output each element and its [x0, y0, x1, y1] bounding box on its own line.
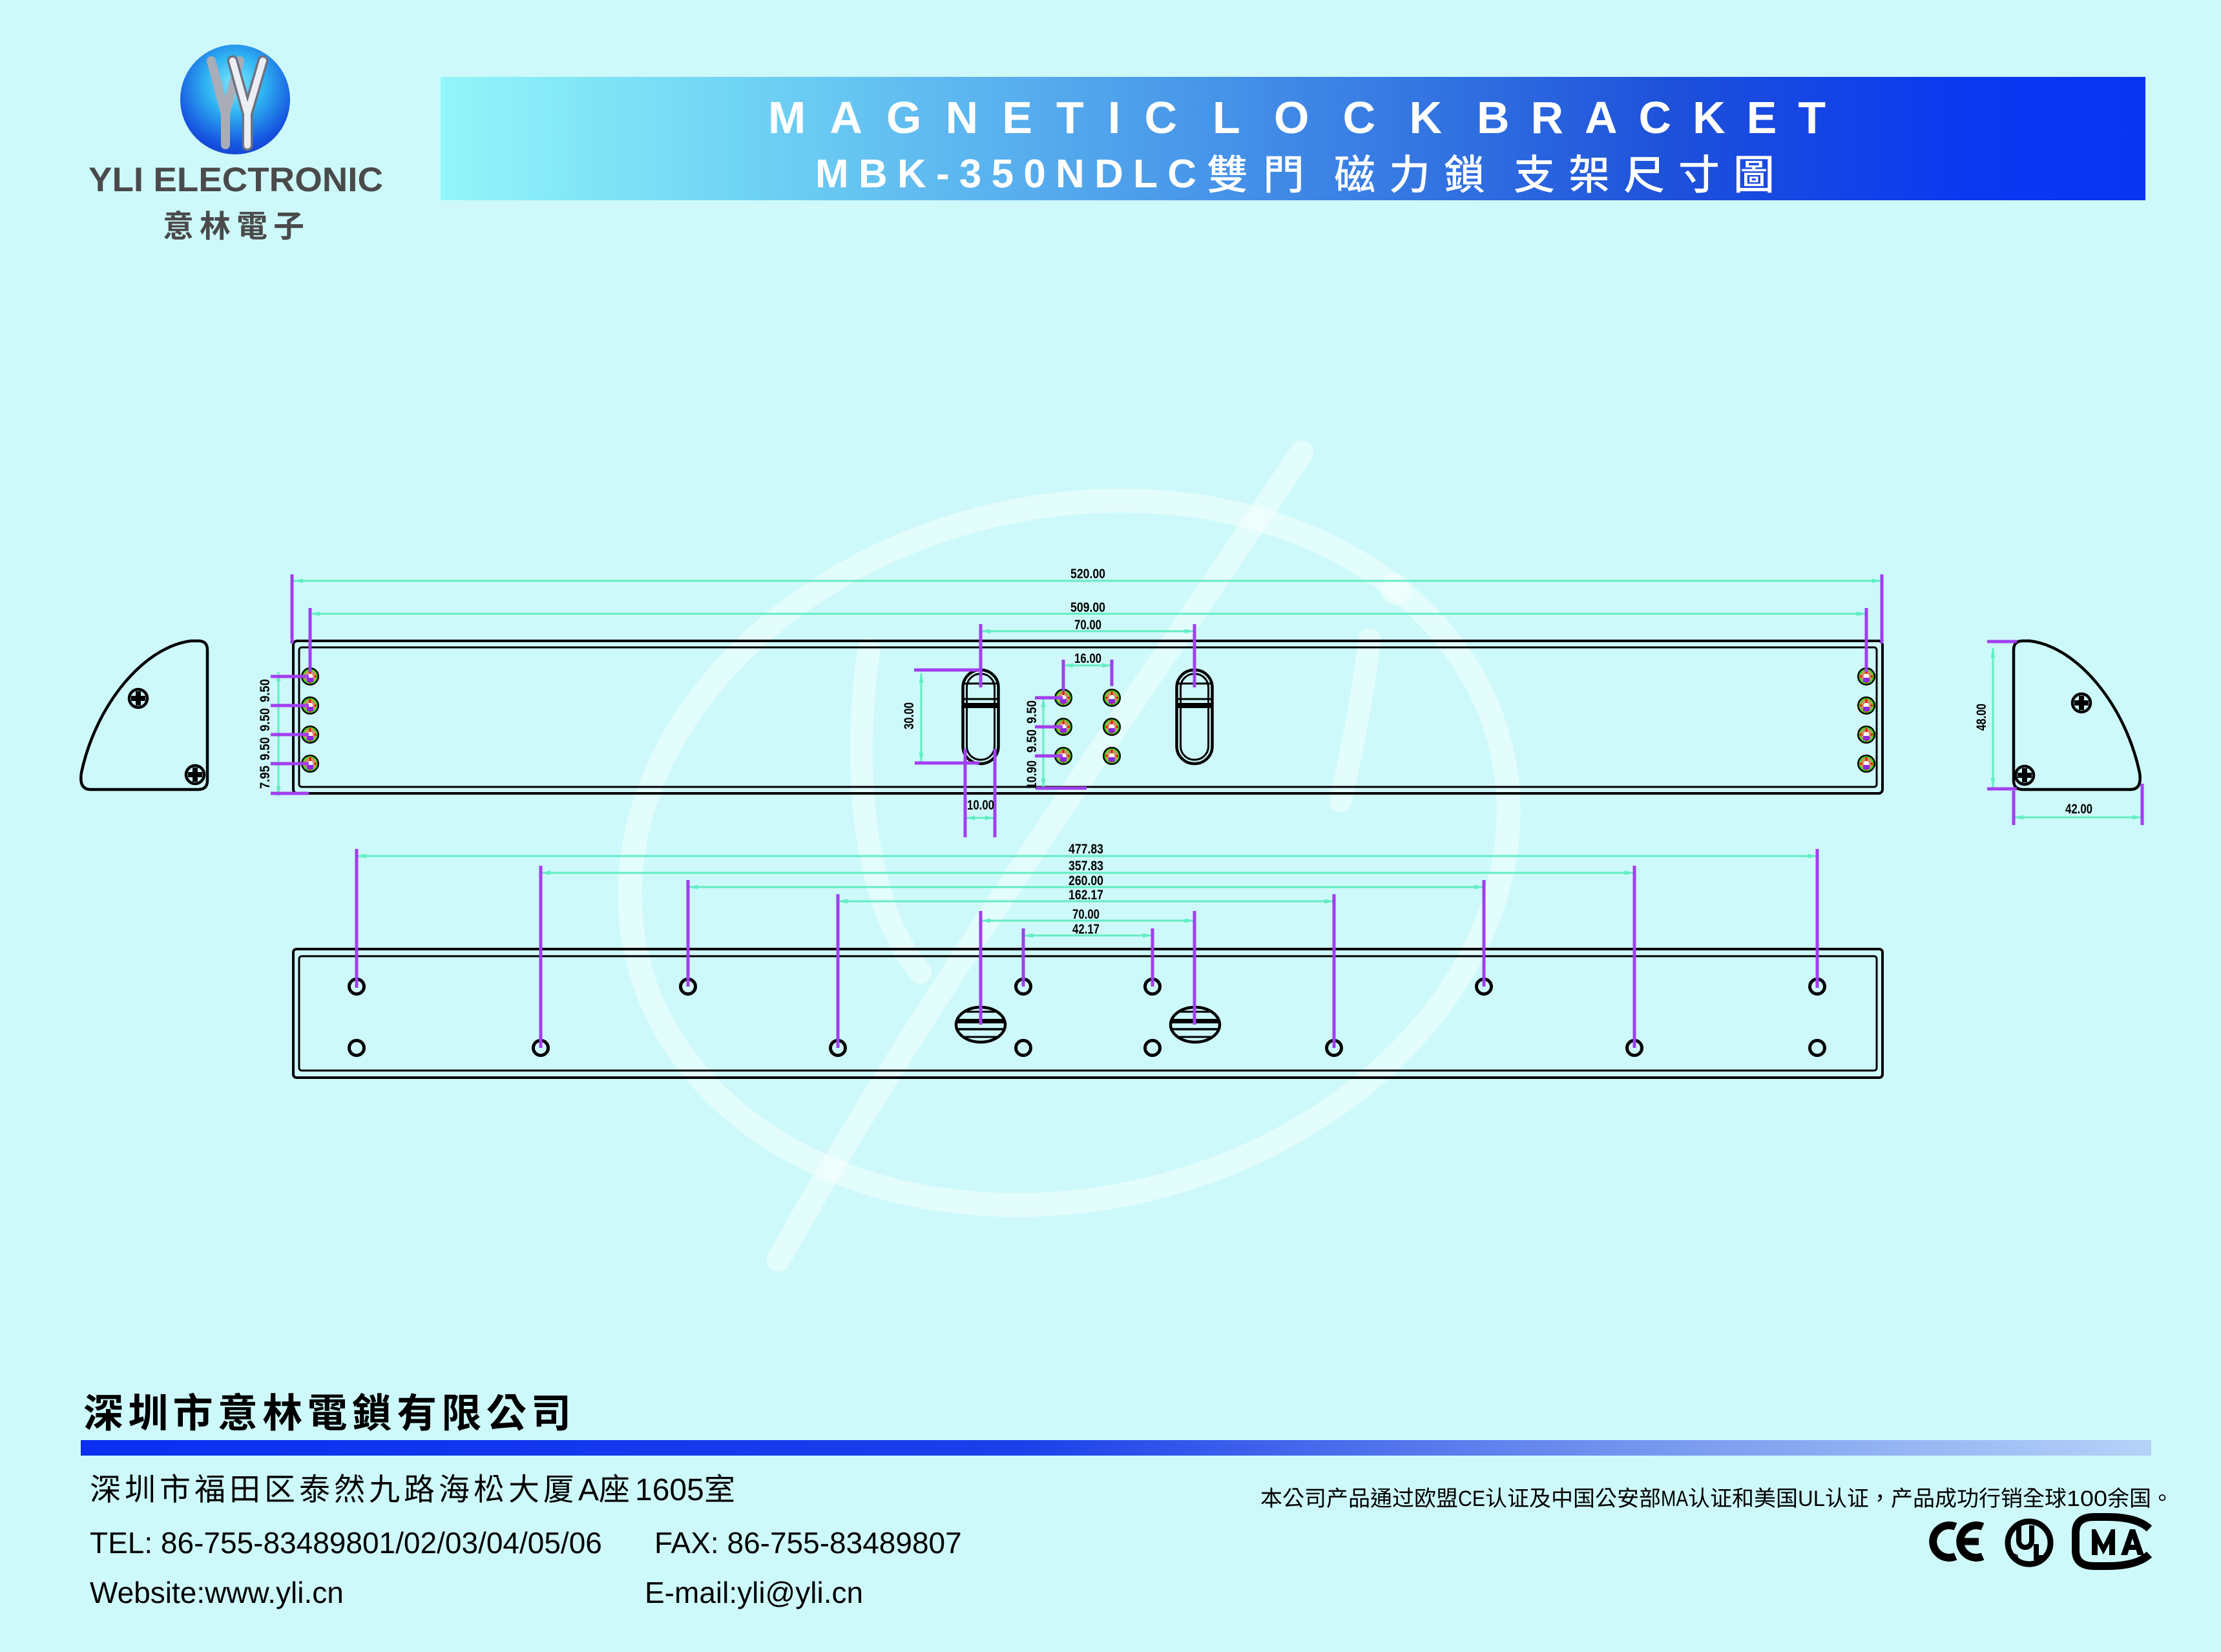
svg-text:TEL: 86-755-83489801/02/03/04/: TEL: 86-755-83489801/02/03/04/05/06 — [90, 1526, 602, 1560]
svg-text:9.50: 9.50 — [258, 708, 273, 731]
svg-text:520.00: 520.00 — [1070, 567, 1105, 581]
svg-text:42.00: 42.00 — [2065, 802, 2092, 817]
svg-text:357.83: 357.83 — [1069, 859, 1103, 873]
svg-text:162.17: 162.17 — [1069, 888, 1103, 903]
svg-text:MA: MA — [1661, 1487, 1688, 1511]
svg-text:509.00: 509.00 — [1070, 600, 1105, 615]
svg-text:9.50: 9.50 — [1025, 700, 1039, 724]
svg-text:70.00: 70.00 — [1072, 907, 1100, 922]
svg-text:A: A — [578, 1473, 599, 1507]
svg-text:MBK-350NDLC: MBK-350NDLC — [815, 152, 1196, 196]
svg-text:9.50: 9.50 — [258, 737, 273, 760]
svg-text:10.00: 10.00 — [967, 798, 994, 813]
svg-text:260.00: 260.00 — [1069, 873, 1103, 888]
svg-text:42.17: 42.17 — [1072, 922, 1100, 937]
svg-text:9.50: 9.50 — [1025, 729, 1039, 753]
svg-text:70.00: 70.00 — [1074, 618, 1101, 633]
svg-text:CE: CE — [1458, 1487, 1485, 1511]
svg-text:9.50: 9.50 — [258, 679, 273, 702]
svg-text:100: 100 — [2067, 1487, 2107, 1511]
svg-text:16.00: 16.00 — [1074, 651, 1101, 666]
svg-text:1605: 1605 — [635, 1473, 704, 1507]
svg-text:UL: UL — [1798, 1487, 1825, 1511]
svg-text:30.00: 30.00 — [902, 702, 917, 729]
svg-text:48.00: 48.00 — [1974, 704, 1989, 731]
svg-text:MAGNETIC: MAGNETIC — [768, 92, 1177, 143]
svg-text:E-mail:yli@yli.cn: E-mail:yli@yli.cn — [645, 1576, 863, 1609]
svg-text:7.95: 7.95 — [258, 766, 273, 789]
svg-text:YLI ELECTRONIC: YLI ELECTRONIC — [89, 161, 383, 199]
svg-text:10.90: 10.90 — [1025, 760, 1039, 789]
svg-text:FAX: 86-755-83489807: FAX: 86-755-83489807 — [654, 1526, 962, 1560]
svg-text:Website:www.yli.cn: Website:www.yli.cn — [90, 1576, 344, 1609]
svg-text:477.83: 477.83 — [1069, 842, 1103, 857]
